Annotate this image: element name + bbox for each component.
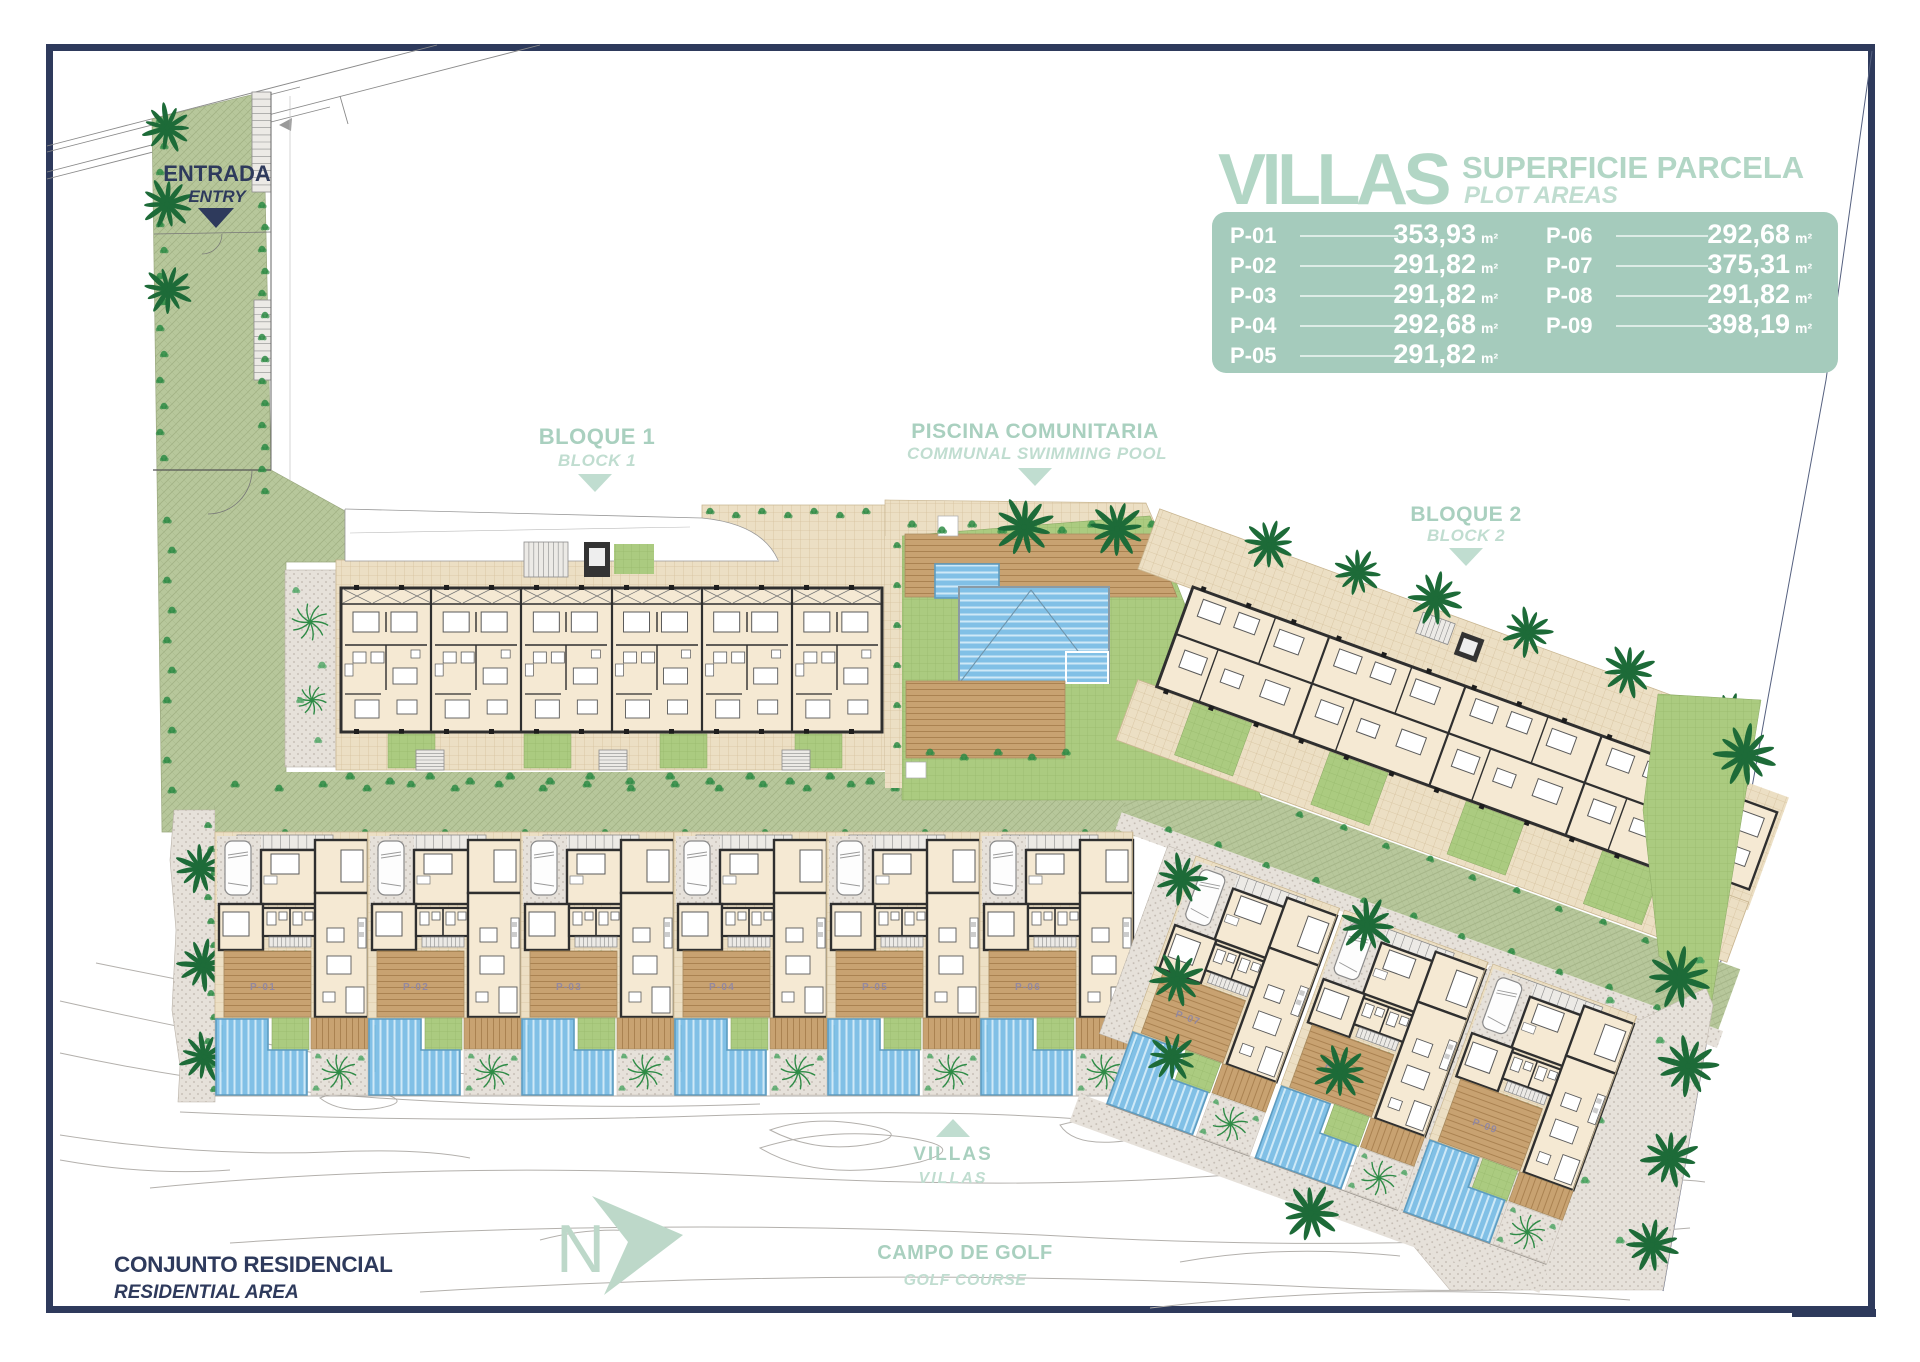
svg-text:CAMPO DE GOLF: CAMPO DE GOLF — [877, 1242, 1052, 1264]
svg-text:m²: m² — [1481, 320, 1498, 336]
svg-text:m²: m² — [1795, 290, 1812, 306]
svg-text:BLOCK 2: BLOCK 2 — [1427, 526, 1505, 545]
svg-text:P-02: P-02 — [403, 982, 429, 993]
svg-text:VILLAS: VILLAS — [1218, 140, 1449, 220]
svg-text:GOLF COURSE: GOLF COURSE — [904, 1272, 1028, 1289]
svg-text:P-04: P-04 — [709, 982, 735, 993]
svg-text:291,82: 291,82 — [1393, 249, 1476, 279]
svg-text:SUPERFICIE PARCELA: SUPERFICIE PARCELA — [1462, 150, 1804, 185]
svg-text:P-05: P-05 — [862, 982, 888, 993]
svg-text:ENTRY: ENTRY — [188, 187, 247, 206]
svg-text:291,82: 291,82 — [1393, 339, 1476, 369]
svg-text:m²: m² — [1481, 230, 1498, 246]
svg-text:P-04: P-04 — [1230, 313, 1277, 338]
svg-text:RESIDENTIAL AREA: RESIDENTIAL AREA — [114, 1282, 299, 1303]
svg-text:P-03: P-03 — [556, 982, 582, 993]
svg-text:m²: m² — [1795, 320, 1812, 336]
svg-text:398,19: 398,19 — [1707, 309, 1790, 339]
svg-text:CONJUNTO RESIDENCIAL: CONJUNTO RESIDENCIAL — [114, 1252, 393, 1277]
svg-text:BLOQUE 2: BLOQUE 2 — [1410, 503, 1521, 526]
svg-text:P-06: P-06 — [1546, 223, 1592, 248]
svg-text:353,93: 353,93 — [1393, 219, 1476, 249]
svg-text:P-02: P-02 — [1230, 253, 1276, 278]
svg-text:ENTRADA: ENTRADA — [163, 161, 271, 186]
svg-text:m²: m² — [1481, 290, 1498, 306]
svg-text:VILLAS: VILLAS — [919, 1170, 988, 1187]
svg-text:291,82: 291,82 — [1707, 279, 1790, 309]
svg-text:m²: m² — [1795, 230, 1812, 246]
svg-text:P-01: P-01 — [1230, 223, 1276, 248]
svg-text:P-09: P-09 — [1546, 313, 1592, 338]
svg-text:m²: m² — [1481, 350, 1498, 366]
svg-text:291,82: 291,82 — [1393, 279, 1476, 309]
svg-text:BLOCK 1: BLOCK 1 — [558, 451, 636, 470]
svg-text:COMMUNAL SWIMMING POOL: COMMUNAL SWIMMING POOL — [907, 444, 1167, 463]
svg-text:375,31: 375,31 — [1707, 249, 1790, 279]
svg-text:m²: m² — [1481, 260, 1498, 276]
svg-text:VILLAS: VILLAS — [913, 1144, 993, 1165]
svg-text:N: N — [556, 1211, 605, 1287]
svg-text:PLOT AREAS: PLOT AREAS — [1464, 182, 1618, 209]
svg-text:m²: m² — [1795, 260, 1812, 276]
svg-text:BLOQUE 1: BLOQUE 1 — [539, 424, 655, 449]
svg-text:P-06: P-06 — [1015, 982, 1041, 993]
svg-text:292,68: 292,68 — [1393, 309, 1476, 339]
svg-text:P-03: P-03 — [1230, 283, 1276, 308]
svg-text:PISCINA COMUNITARIA: PISCINA COMUNITARIA — [911, 420, 1159, 443]
svg-text:P-05: P-05 — [1230, 343, 1276, 368]
svg-text:P-07: P-07 — [1546, 253, 1592, 278]
svg-text:P-01: P-01 — [250, 982, 276, 993]
svg-text:P-08: P-08 — [1546, 283, 1592, 308]
svg-text:292,68: 292,68 — [1707, 219, 1790, 249]
